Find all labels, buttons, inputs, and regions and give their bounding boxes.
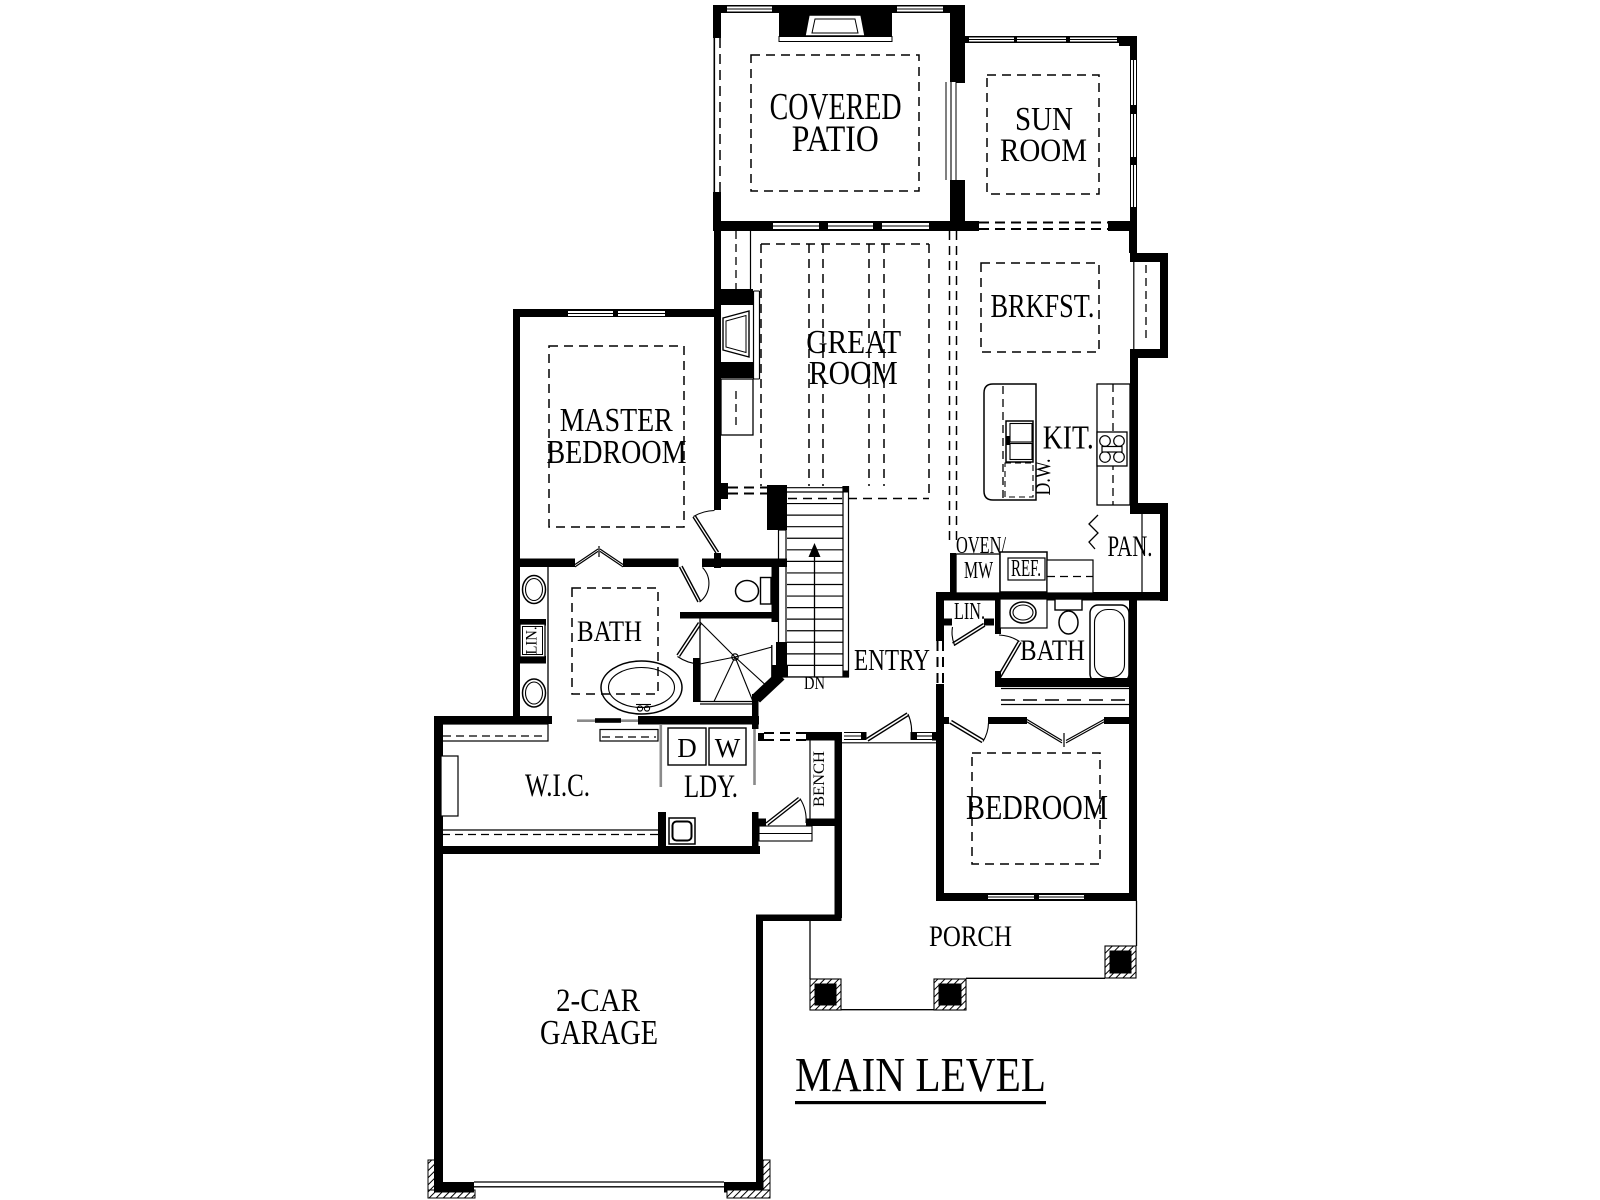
svg-text:OVEN/: OVEN/ bbox=[956, 533, 1006, 559]
svg-text:LIN.: LIN. bbox=[524, 627, 541, 655]
svg-text:PORCH: PORCH bbox=[929, 920, 1012, 953]
svg-text:ENTRY: ENTRY bbox=[854, 642, 930, 677]
svg-text:PATIO: PATIO bbox=[792, 119, 879, 160]
svg-text:KIT.: KIT. bbox=[1043, 420, 1094, 457]
svg-text:REF.: REF. bbox=[1011, 556, 1041, 582]
svg-text:BEDROOM: BEDROOM bbox=[547, 434, 687, 471]
svg-text:BEDROOM: BEDROOM bbox=[966, 788, 1108, 827]
svg-text:MW: MW bbox=[964, 558, 993, 584]
svg-text:BENCH: BENCH bbox=[811, 751, 828, 807]
svg-text:DN: DN bbox=[804, 673, 825, 693]
svg-text:BATH: BATH bbox=[1020, 634, 1085, 667]
svg-text:W.I.C.: W.I.C. bbox=[525, 768, 590, 804]
svg-text:LIN.: LIN. bbox=[954, 599, 985, 625]
svg-text:D: D bbox=[677, 733, 697, 763]
svg-text:GARAGE: GARAGE bbox=[540, 1013, 658, 1052]
svg-text:BATH: BATH bbox=[577, 615, 642, 648]
svg-text:W: W bbox=[715, 733, 741, 763]
svg-text:ROOM: ROOM bbox=[809, 355, 898, 392]
svg-text:D.W.: D.W. bbox=[1030, 459, 1055, 496]
svg-text:MAIN LEVEL: MAIN LEVEL bbox=[795, 1047, 1046, 1102]
svg-text:ROOM: ROOM bbox=[1000, 133, 1087, 169]
svg-text:PAN.: PAN. bbox=[1108, 530, 1153, 563]
svg-text:BRKFST.: BRKFST. bbox=[991, 288, 1095, 325]
svg-text:LDY.: LDY. bbox=[684, 769, 738, 805]
